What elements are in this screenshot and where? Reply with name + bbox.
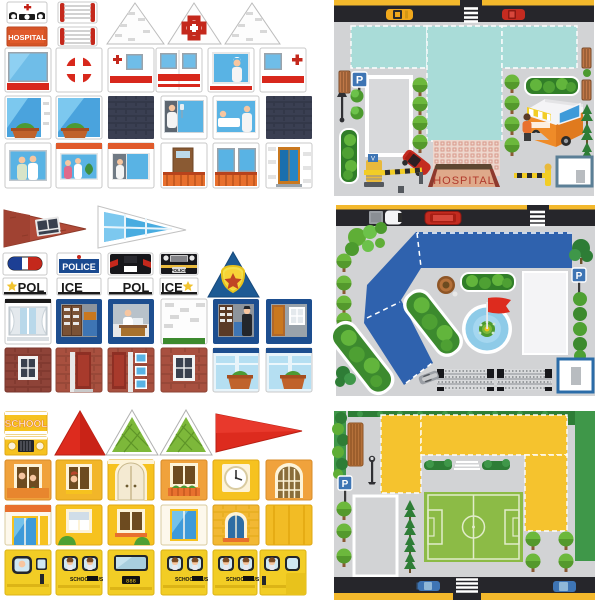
svg-text:SCHOOL: SCHOOL [5,419,48,430]
svg-text:SCHOOL BUS: SCHOOL BUS [226,577,260,583]
svg-text:888: 888 [126,578,136,585]
svg-text:HOSPITAL: HOSPITAL [8,33,46,42]
svg-text:POLICE: POLICE [62,262,96,272]
svg-text:SCHOOL BUS: SCHOOL BUS [175,577,209,583]
svg-text:P: P [342,479,349,490]
svg-text:SCHOOL BUS: SCHOOL BUS [70,577,104,583]
svg-text:HOSPITAL: HOSPITAL [433,175,495,187]
svg-text:P: P [356,75,363,87]
svg-text:V: V [371,157,375,163]
svg-text:POLICE: POLICE [170,268,187,273]
svg-text:P: P [576,271,583,282]
